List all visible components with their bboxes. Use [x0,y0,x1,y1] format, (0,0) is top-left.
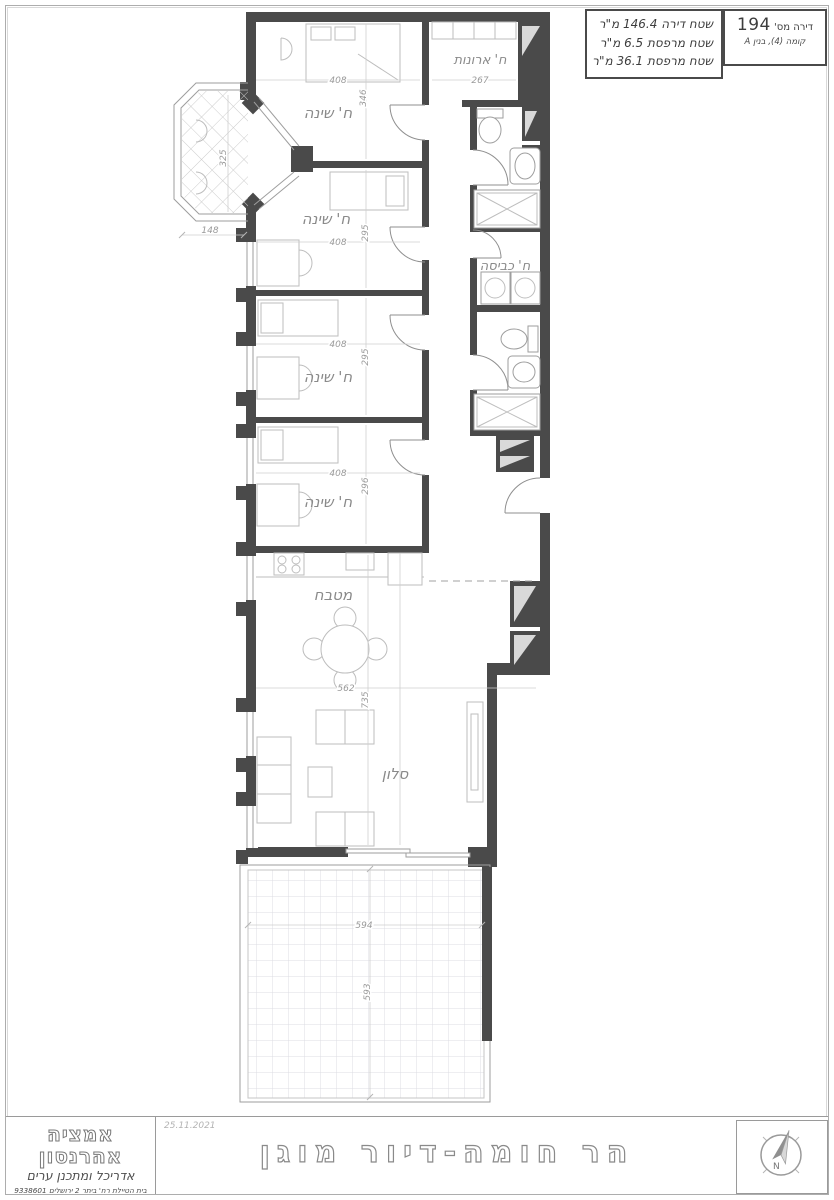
dim-bedroom1-w: 408 [329,76,346,86]
room-label-laundry: ח' כביסה [480,259,531,274]
dim-bedroom1-h: 346 [359,89,369,106]
kitchen-furniture [256,553,424,691]
dim-bedroom2-w: 408 [329,238,346,248]
room-label-bedroom-1: ח' שינה [304,104,353,122]
drawing-sheet: ח' שינה ח' שינה ח' שינה ח' שינה ח' ארונו… [0,0,834,1200]
closet-wardrobe [432,22,516,39]
balcony-octagon [174,83,248,221]
unit-number-line: דירה מס' 194 [731,15,819,35]
bedroom-4-furniture [257,427,338,526]
dim-balcony-h: 325 [219,149,229,166]
area-line: שטח מרפסת 6.5 מ"ר [595,34,713,53]
washbasin [515,153,535,179]
dim-bedroom4-h: 296 [361,477,371,494]
dining-table [321,625,369,673]
architect-box: אמציה אהרנסון אדריכל ומתכנן ערים בית הטי… [6,1117,156,1194]
room-label-kitchen: מטבח [314,586,353,604]
shower [474,190,540,228]
sliding-door [346,849,410,853]
coffee-table [308,767,332,797]
dim-terrace-w: 594 [355,921,372,931]
room-label-closet: ח' ארונות [453,53,507,68]
area-line: שטח מרפסת 36.1 מ"ר [595,52,713,71]
floor-plan: ח' שינה ח' שינה ח' שינה ח' שינה ח' ארונו… [0,0,834,1200]
toilet [479,117,501,143]
kitchen-sink [346,553,374,570]
dim-bedroom3-w: 408 [329,340,346,350]
dim-bedroom4-w: 408 [329,469,346,479]
firm-name: אמציה אהרנסון [6,1123,155,1167]
room-label-bedroom-3: ח' שינה [304,368,353,386]
areas-box: שטח דירה 146.4 מ"ר שטח מרפסת 6.5 מ"ר שטח… [585,9,723,79]
unit-info-box: דירה מס' 194 קומה (4), בנין A [723,9,827,66]
dim-kitchen-living-h: 735 [361,691,371,708]
bedroom-2-furniture [257,172,408,286]
shower [474,394,540,430]
title-block: אמציה אהרנסון אדריכל ומתכנן ערים בית הטי… [6,1116,828,1194]
dim-kitchen-w: 562 [337,684,354,694]
compass-box: N [736,1120,828,1194]
unit-number: 194 [737,15,771,35]
project-title: הר חומה-דיור מוגן [166,1135,728,1170]
drawing-date: 25.11.2021 [164,1121,216,1131]
room-label-bedroom-4: ח' שינה [304,493,353,511]
bedroom-1-furniture [281,24,400,82]
area-line: שטח דירה 146.4 מ"ר [595,15,713,34]
room-label-living: סלון [382,765,410,783]
firm-role: אדריכל ומתכנן ערים [6,1168,155,1183]
toilet [501,329,527,349]
entrance-door [505,478,540,513]
dim-bedroom2-h: 295 [361,224,371,241]
dim-closet-w: 267 [471,76,488,86]
north-label: N [773,1162,780,1172]
title-header: דירה מס' 194 קומה (4), בנין A שטח דירה 1… [585,9,827,79]
floor-building-line: קומה (4), בנין A [731,37,819,47]
bathroom-2 [474,326,540,430]
laundry-machines [481,272,540,304]
room-label-bedroom-2: ח' שינה [302,210,351,228]
dim-bedroom3-h: 295 [361,348,371,365]
unit-label: דירה מס' [774,22,813,33]
washbasin [513,362,535,382]
dim-terrace-h: 593 [363,983,373,1000]
firm-address: בית הטיילת רח' ביתר 2 ירושלים 9338601 [6,1186,155,1197]
north-arrow-icon: N [737,1121,825,1191]
tv-unit [467,702,483,802]
dim-balcony-w: 148 [201,226,218,236]
living-room-furniture [257,702,483,846]
fridge [388,553,422,585]
